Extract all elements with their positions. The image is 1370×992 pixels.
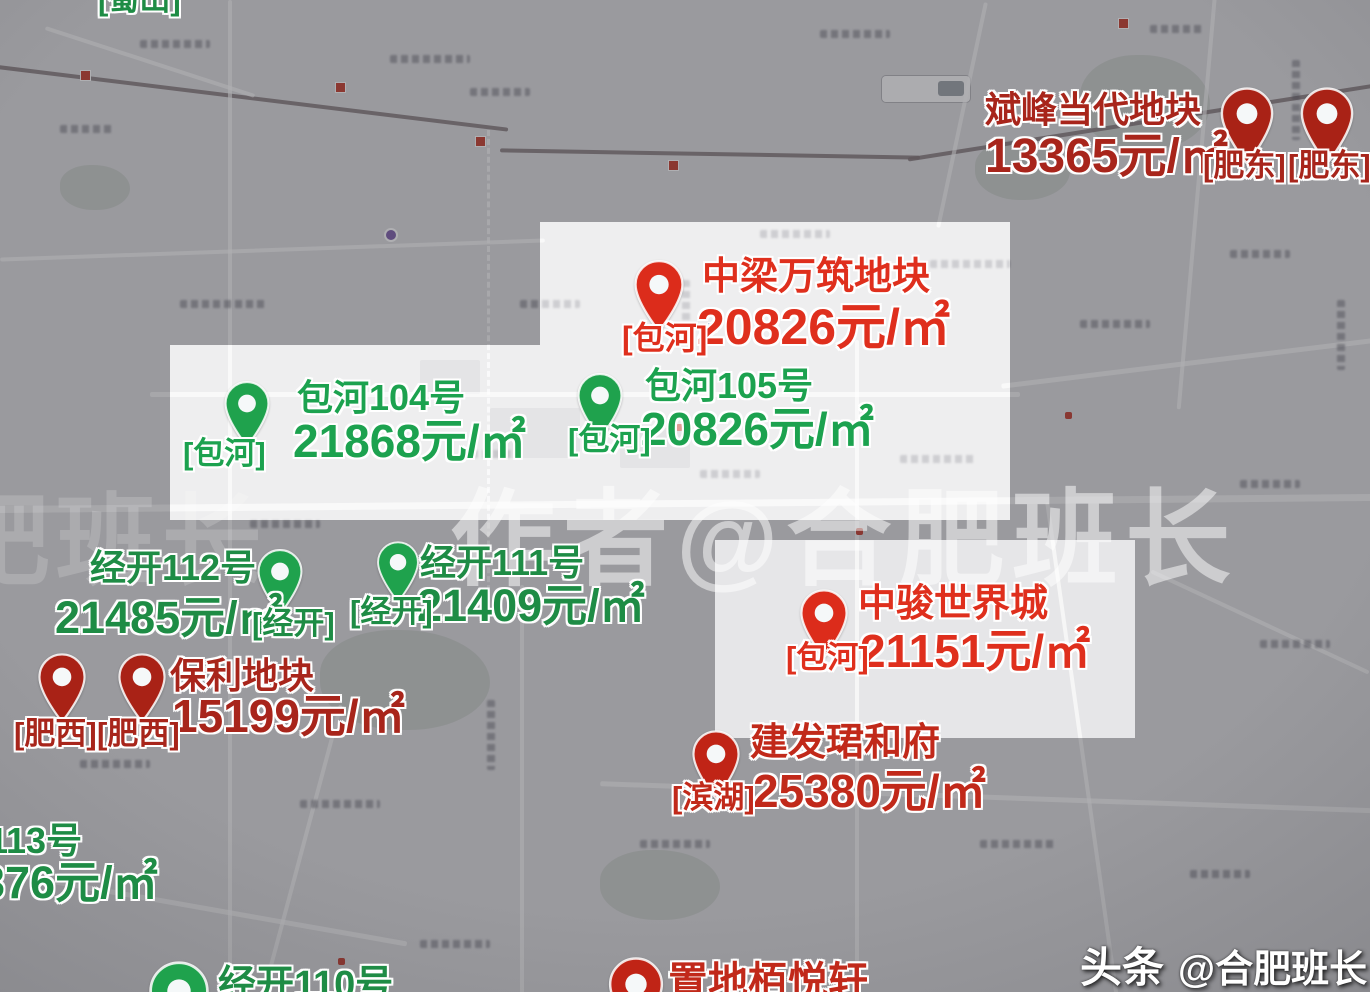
listing-name: 中骏世界城 (858, 585, 1048, 623)
district-tag: [肥西] (97, 718, 180, 749)
district-tag: [包河] (183, 438, 266, 469)
brand-site: 头条 (1080, 934, 1164, 992)
listing-name: 经开111号 (420, 545, 584, 581)
map-pin-icon (116, 652, 168, 724)
dim-overlay (1010, 222, 1370, 345)
listing-price: 20826元/㎡ (641, 406, 874, 452)
listing-price: 20826元/㎡ (697, 302, 950, 352)
district-tag-shushan: [蜀山] (98, 0, 181, 15)
district-tag: [包河] (568, 424, 651, 455)
listing-name: 包河105号 (645, 368, 813, 404)
listing-price: 21409元/㎡ (417, 583, 645, 628)
brand-handle: @合肥班长 (1178, 938, 1367, 992)
brand-watermark: 头条 @合肥班长 (1080, 934, 1367, 992)
listing-name: 置地栢悦轩 (668, 962, 868, 992)
listing-price: 13365元/㎡ (985, 133, 1228, 181)
listing-name: 经开112号 (90, 550, 256, 586)
listing-name: 中梁万筑地块 (702, 258, 930, 296)
map-pin-icon (146, 960, 212, 992)
district-tag: [经开] (252, 608, 335, 639)
district-tag: [经开] (350, 596, 433, 627)
listing-name: 包河104号 (297, 380, 465, 416)
district-tag: [滨湖] (672, 782, 755, 813)
listing-price: 376元/㎡ (0, 860, 158, 905)
listing-name: 保利地块 (170, 658, 314, 694)
listing-price: 15199元/㎡ (172, 693, 405, 739)
district-tag: [肥东] (1288, 150, 1370, 181)
listing-price: 21485元/㎡ (55, 595, 283, 640)
map-pin-icon (606, 956, 666, 992)
listing-name: 建发珺和府 (750, 724, 940, 762)
listing-price: 21868元/㎡ (293, 418, 526, 464)
district-tag: [包河] (786, 642, 869, 673)
listing-name: 斌峰当代地块 (985, 92, 1201, 128)
listing-name: 经开110号 (218, 966, 393, 992)
listing-price: 25380元/㎡ (753, 768, 986, 814)
map-screenshot: 肥班长 作者@合肥班长 [蜀山] 斌峰当代地块 13365元/㎡ [肥东] [肥… (0, 0, 1370, 992)
district-tag: [肥西] (14, 718, 97, 749)
listing-name: 113号 (0, 823, 82, 859)
dim-overlay (0, 222, 540, 345)
district-tag: [肥东] (1203, 150, 1286, 181)
map-pin-icon (36, 652, 88, 724)
listing-price: 21151元/㎡ (860, 628, 1090, 674)
district-tag: [包河] (622, 322, 707, 354)
